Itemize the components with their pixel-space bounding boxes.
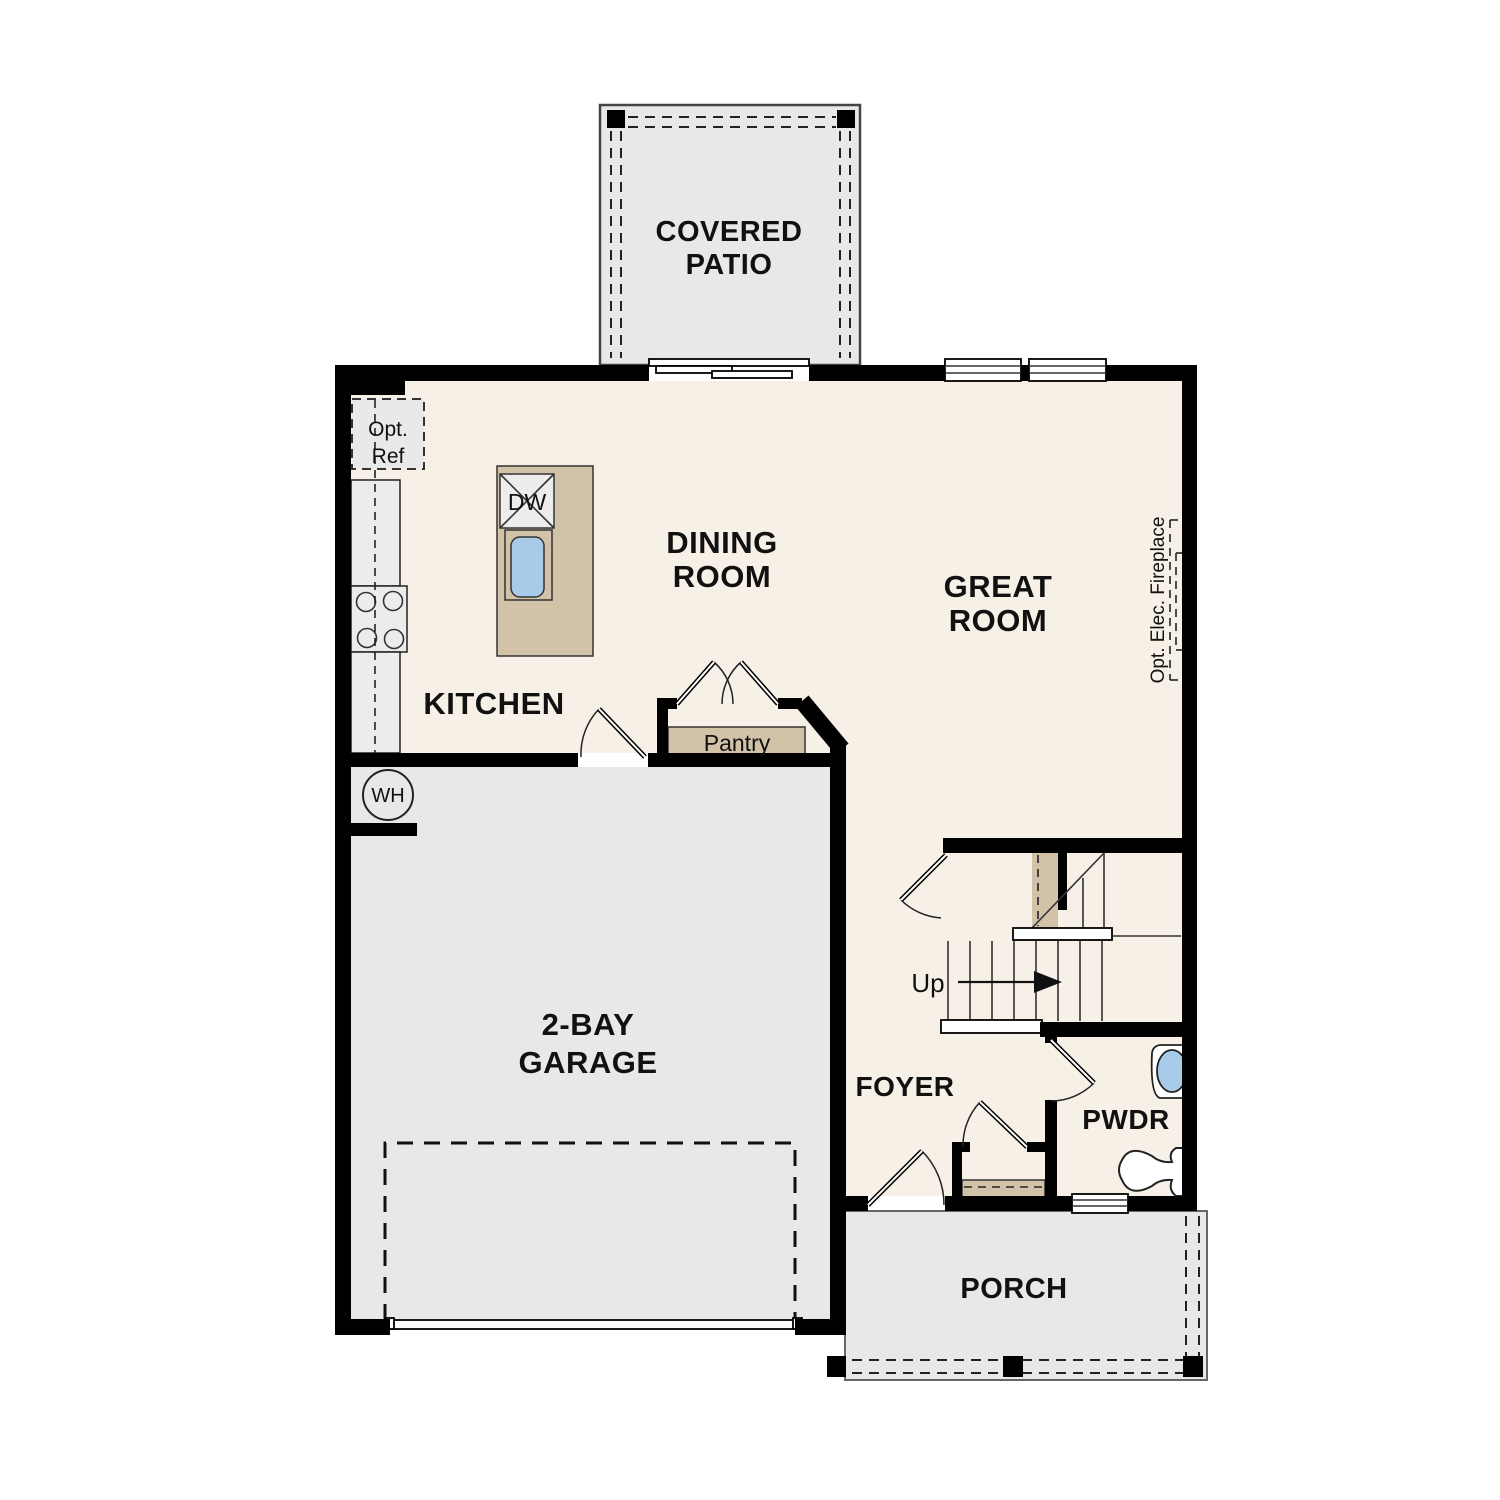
great-room-window (1029, 359, 1106, 381)
patio-post (607, 110, 625, 128)
dining-room-label: DINING (666, 525, 778, 560)
porch-post (827, 1356, 846, 1377)
patio-post (837, 110, 855, 128)
stair-half-wall (1032, 853, 1058, 928)
garage-label: 2-BAY (542, 1007, 635, 1042)
stairs-up-label: Up (911, 968, 944, 998)
covered-patio-label: COVERED (656, 216, 803, 248)
kitchen-label: KITCHEN (423, 686, 564, 721)
great-room-label: GREAT (944, 569, 1053, 604)
dishwasher-label: DW (508, 489, 547, 515)
optional-fireplace-label: Opt. Elec. Fireplace (1148, 517, 1169, 684)
foyer-label: FOYER (856, 1071, 955, 1102)
optional-refrigerator-label: Ref (372, 445, 405, 468)
patio-sliding-door (649, 359, 809, 378)
dining-room-label: ROOM (673, 559, 771, 594)
garage-label: GARAGE (518, 1045, 657, 1080)
optional-refrigerator-label: Opt. (368, 418, 408, 441)
covered-patio-label: PATIO (686, 249, 773, 281)
floor-plan-drawing: COVERED PATIO DINING ROOM GREAT ROOM KIT… (0, 0, 1500, 1500)
stair-bottom-tread (941, 1020, 1042, 1033)
garage-door (390, 1320, 797, 1329)
porch-post (1183, 1356, 1203, 1377)
floor-plan-canvas: COVERED PATIO DINING ROOM GREAT ROOM KIT… (0, 0, 1500, 1500)
porch-post (1003, 1356, 1023, 1377)
powder-window (1072, 1194, 1128, 1213)
powder-room-label: PWDR (1082, 1104, 1170, 1135)
pantry-label: Pantry (704, 730, 771, 756)
porch-label: PORCH (960, 1273, 1067, 1305)
great-room-window (945, 359, 1021, 381)
water-heater-label: WH (371, 785, 404, 807)
kitchen-sink (511, 537, 544, 597)
stair-landing-edge (1013, 928, 1112, 940)
great-room-label: ROOM (949, 603, 1047, 638)
